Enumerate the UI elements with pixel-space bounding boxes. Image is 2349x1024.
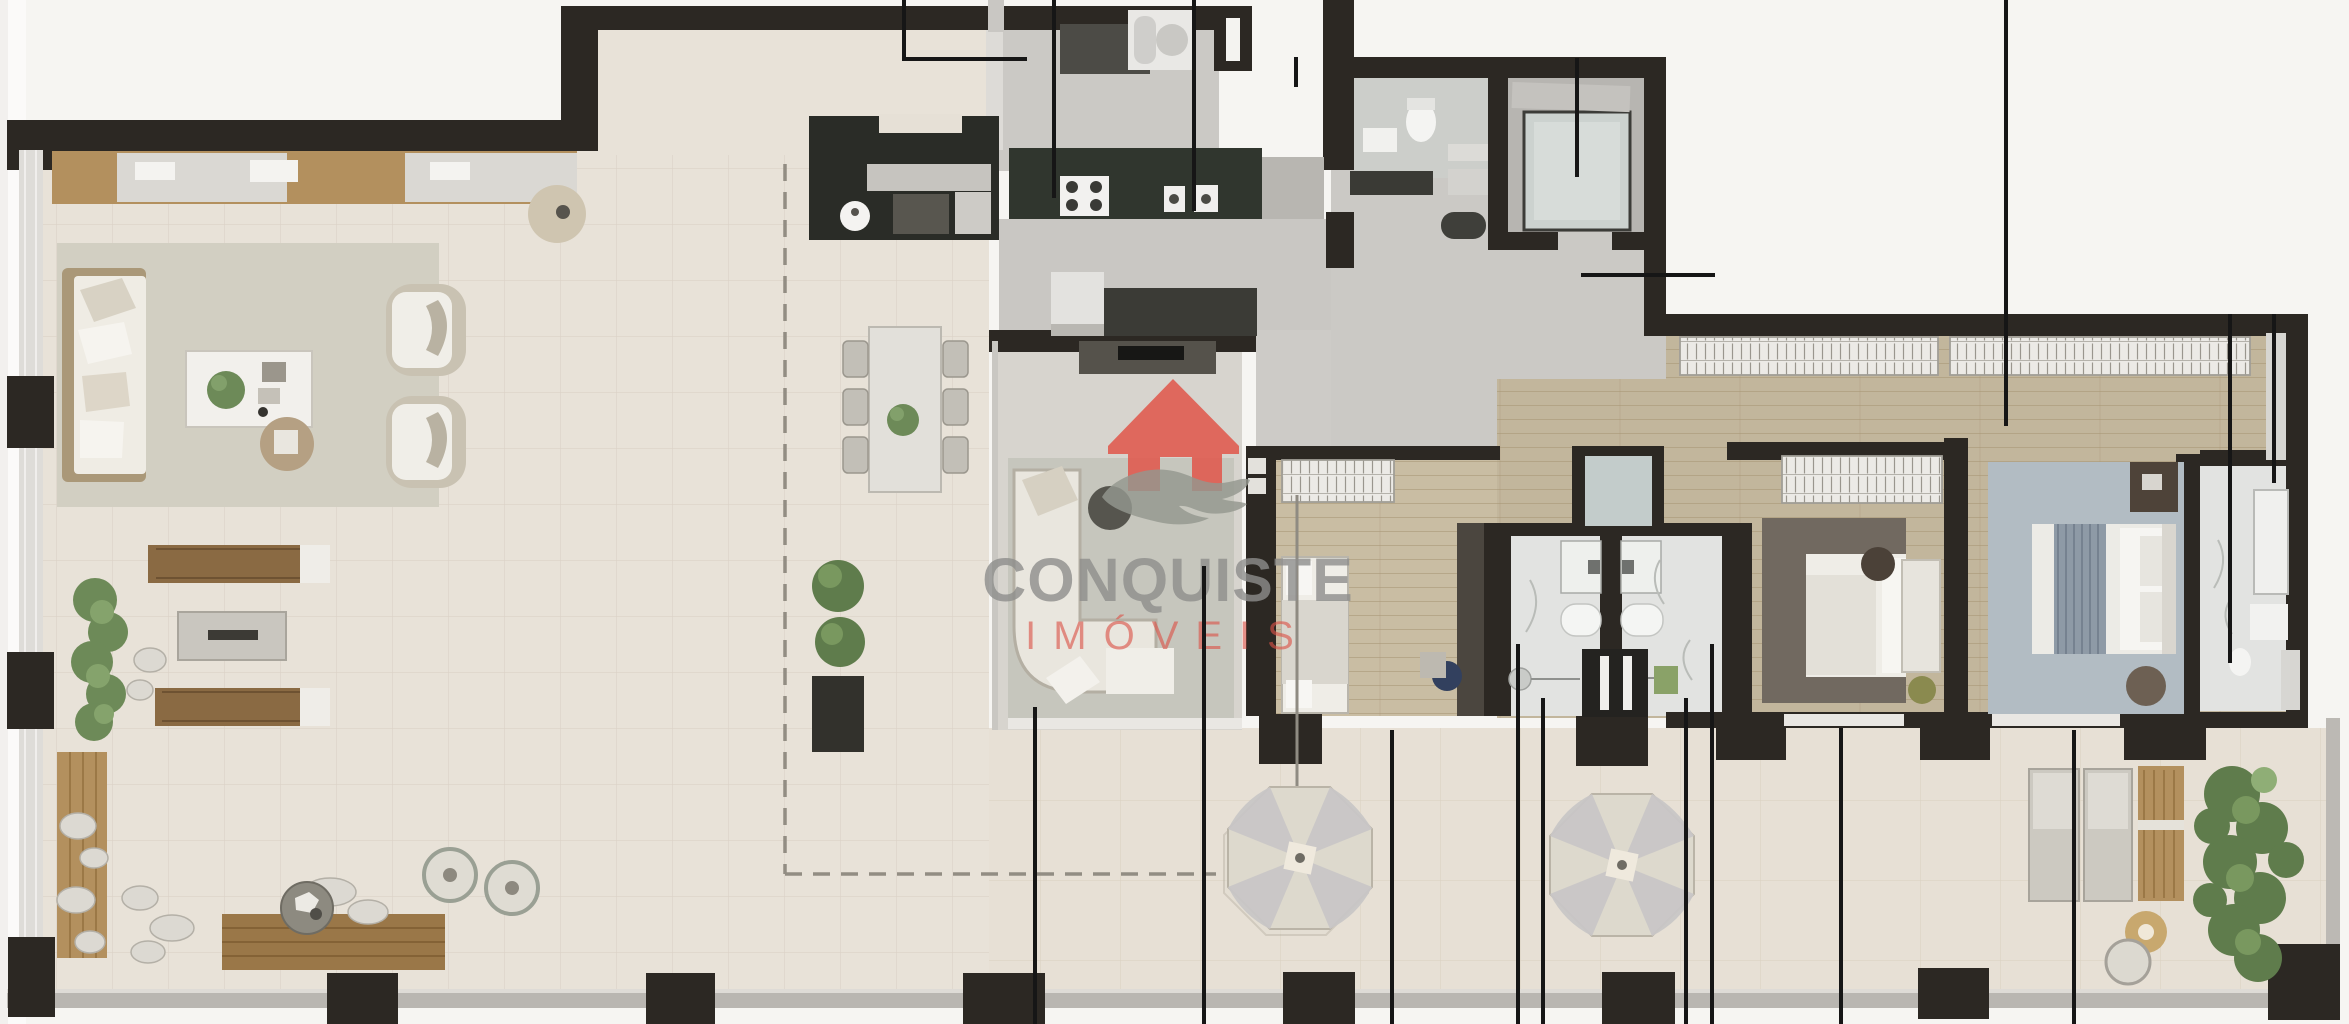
svg-text:CONQUISTE: CONQUISTE xyxy=(982,546,1354,614)
svg-text:IMÓVEIS: IMÓVEIS xyxy=(1025,613,1311,658)
